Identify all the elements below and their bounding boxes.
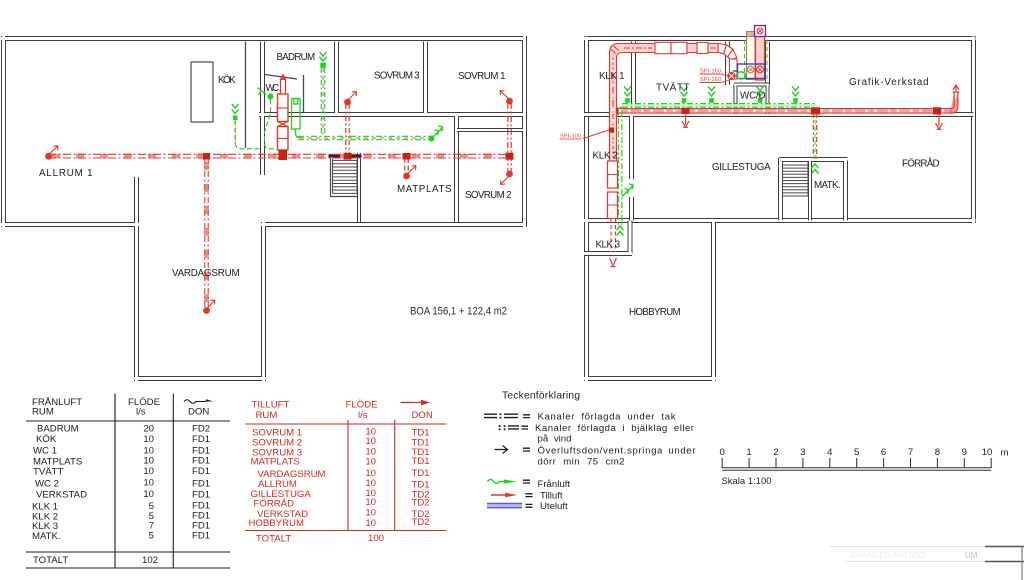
svg-text:Kanaler förlagda under tak: Kanaler förlagda under tak: [538, 412, 676, 423]
svg-text:på vind: på vind: [538, 434, 572, 445]
svg-text:WC 1: WC 1: [33, 446, 57, 457]
svg-text:m: m: [1001, 448, 1009, 459]
svg-text:10: 10: [143, 478, 154, 489]
svg-text:Frånluft: Frånluft: [538, 479, 571, 490]
svg-text:3: 3: [800, 447, 805, 458]
svg-text:KÖK: KÖK: [218, 75, 236, 86]
svg-text:TOTALT: TOTALT: [256, 534, 291, 545]
svg-text:TVÄTT: TVÄTT: [33, 467, 64, 478]
svg-text:10: 10: [143, 434, 154, 445]
svg-text:TILLUFT: TILLUFT: [252, 400, 290, 411]
svg-text:10: 10: [143, 489, 154, 500]
svg-text:BOA 156,1 + 122,4 m2: BOA 156,1 + 122,4 m2: [410, 306, 507, 318]
svg-text:10: 10: [365, 508, 376, 519]
svg-text:VARDAGSRUM: VARDAGSRUM: [172, 268, 240, 279]
svg-text:WC/D: WC/D: [740, 91, 766, 102]
svg-text:9: 9: [962, 447, 967, 458]
svg-text:FD1: FD1: [192, 456, 210, 467]
svg-text:WC 2: WC 2: [35, 479, 59, 490]
svg-text:DON: DON: [412, 410, 433, 421]
svg-text:WC: WC: [266, 83, 280, 94]
svg-text:TD1: TD1: [412, 468, 430, 479]
svg-text:TD2: TD2: [412, 517, 430, 528]
svg-text:MATPLATS: MATPLATS: [397, 184, 452, 195]
svg-text:0: 0: [720, 447, 725, 458]
svg-text:Kanaler förlagda i bjälklag el: Kanaler förlagda i bjälklag eller: [535, 423, 695, 434]
svg-text:FD1: FD1: [192, 479, 210, 490]
svg-text:MATK.: MATK.: [814, 180, 841, 191]
svg-text:10: 10: [365, 497, 376, 508]
svg-text:MATPLATS: MATPLATS: [251, 457, 300, 468]
svg-text:Tilluft: Tilluft: [540, 491, 563, 502]
svg-text:TD2: TD2: [412, 498, 430, 509]
svg-text:100: 100: [368, 533, 384, 544]
svg-text:RUM: RUM: [256, 410, 278, 421]
svg-text:HOBBYRUM: HOBBYRUM: [249, 518, 304, 529]
svg-text:KLK 2: KLK 2: [593, 151, 619, 162]
svg-text:ALLRUM 1: ALLRUM 1: [39, 168, 93, 179]
svg-text:10: 10: [143, 466, 154, 477]
svg-text:FD1: FD1: [192, 466, 210, 477]
svg-text:Överluftsdon/vent.springa unde: Överluftsdon/vent.springa under: [538, 446, 697, 457]
svg-text:102: 102: [142, 555, 158, 566]
svg-text:TVÄTT: TVÄTT: [656, 83, 690, 94]
svg-text:TOTALT: TOTALT: [33, 555, 68, 566]
svg-text:MATK.: MATK.: [32, 531, 61, 542]
svg-text:7: 7: [908, 447, 913, 458]
svg-text:FD1: FD1: [192, 490, 210, 501]
svg-text:20: 20: [143, 424, 154, 435]
svg-text:10: 10: [982, 447, 993, 458]
svg-text:GRANGEN ANTSSO: GRANGEN ANTSSO: [850, 551, 925, 560]
svg-text:Skala 1:100: Skala 1:100: [722, 475, 772, 486]
svg-text:10: 10: [365, 518, 376, 529]
svg-text:4: 4: [827, 447, 833, 458]
svg-text:FLÖDE: FLÖDE: [346, 400, 378, 411]
svg-text:DON: DON: [188, 407, 209, 418]
svg-text:10: 10: [365, 436, 376, 447]
svg-text:6: 6: [881, 447, 886, 458]
svg-text:FD1: FD1: [192, 531, 210, 542]
svg-text:SOVRUM 2: SOVRUM 2: [465, 190, 512, 201]
svg-text:Uteluft: Uteluft: [540, 501, 568, 512]
svg-text:GILLESTUGA: GILLESTUGA: [712, 162, 771, 173]
svg-text:l/s: l/s: [358, 410, 368, 421]
svg-text:10: 10: [365, 457, 376, 468]
svg-text:FÖRRÅD: FÖRRÅD: [254, 499, 295, 510]
svg-text:FD1: FD1: [192, 434, 210, 445]
svg-text:BADRUM: BADRUM: [277, 52, 316, 63]
svg-text:FD2: FD2: [192, 424, 210, 435]
svg-text:5: 5: [854, 447, 859, 458]
svg-text:Teckenförklaring: Teckenförklaring: [502, 391, 580, 402]
svg-text:KLK 3: KLK 3: [596, 240, 621, 251]
svg-text:SOVRUM 1: SOVRUM 1: [458, 71, 506, 82]
svg-text:VERKSTAD: VERKSTAD: [36, 490, 87, 501]
svg-text:KLK 1: KLK 1: [599, 71, 625, 82]
svg-text:HOBBYRUM: HOBBYRUM: [629, 307, 681, 318]
svg-text:FÖRRÅD: FÖRRÅD: [902, 159, 940, 170]
svg-text:2: 2: [773, 447, 778, 458]
svg-text:Grafik-Verkstad: Grafik-Verkstad: [849, 77, 929, 88]
svg-text:10: 10: [143, 456, 154, 467]
svg-text:UM: UM: [965, 551, 978, 560]
svg-text:RUM: RUM: [32, 407, 54, 418]
svg-text:BADRUM: BADRUM: [37, 424, 79, 435]
svg-text:1: 1: [746, 447, 751, 458]
svg-text:dörr min 75 cm2: dörr min 75 cm2: [538, 457, 625, 468]
svg-text:5: 5: [149, 531, 154, 542]
svg-text:KÖK: KÖK: [36, 434, 57, 445]
svg-text:8: 8: [935, 447, 940, 458]
svg-text:SOVRUM 3: SOVRUM 3: [374, 71, 420, 82]
svg-text:TD1: TD1: [412, 456, 430, 467]
svg-text:l/s: l/s: [136, 407, 146, 418]
